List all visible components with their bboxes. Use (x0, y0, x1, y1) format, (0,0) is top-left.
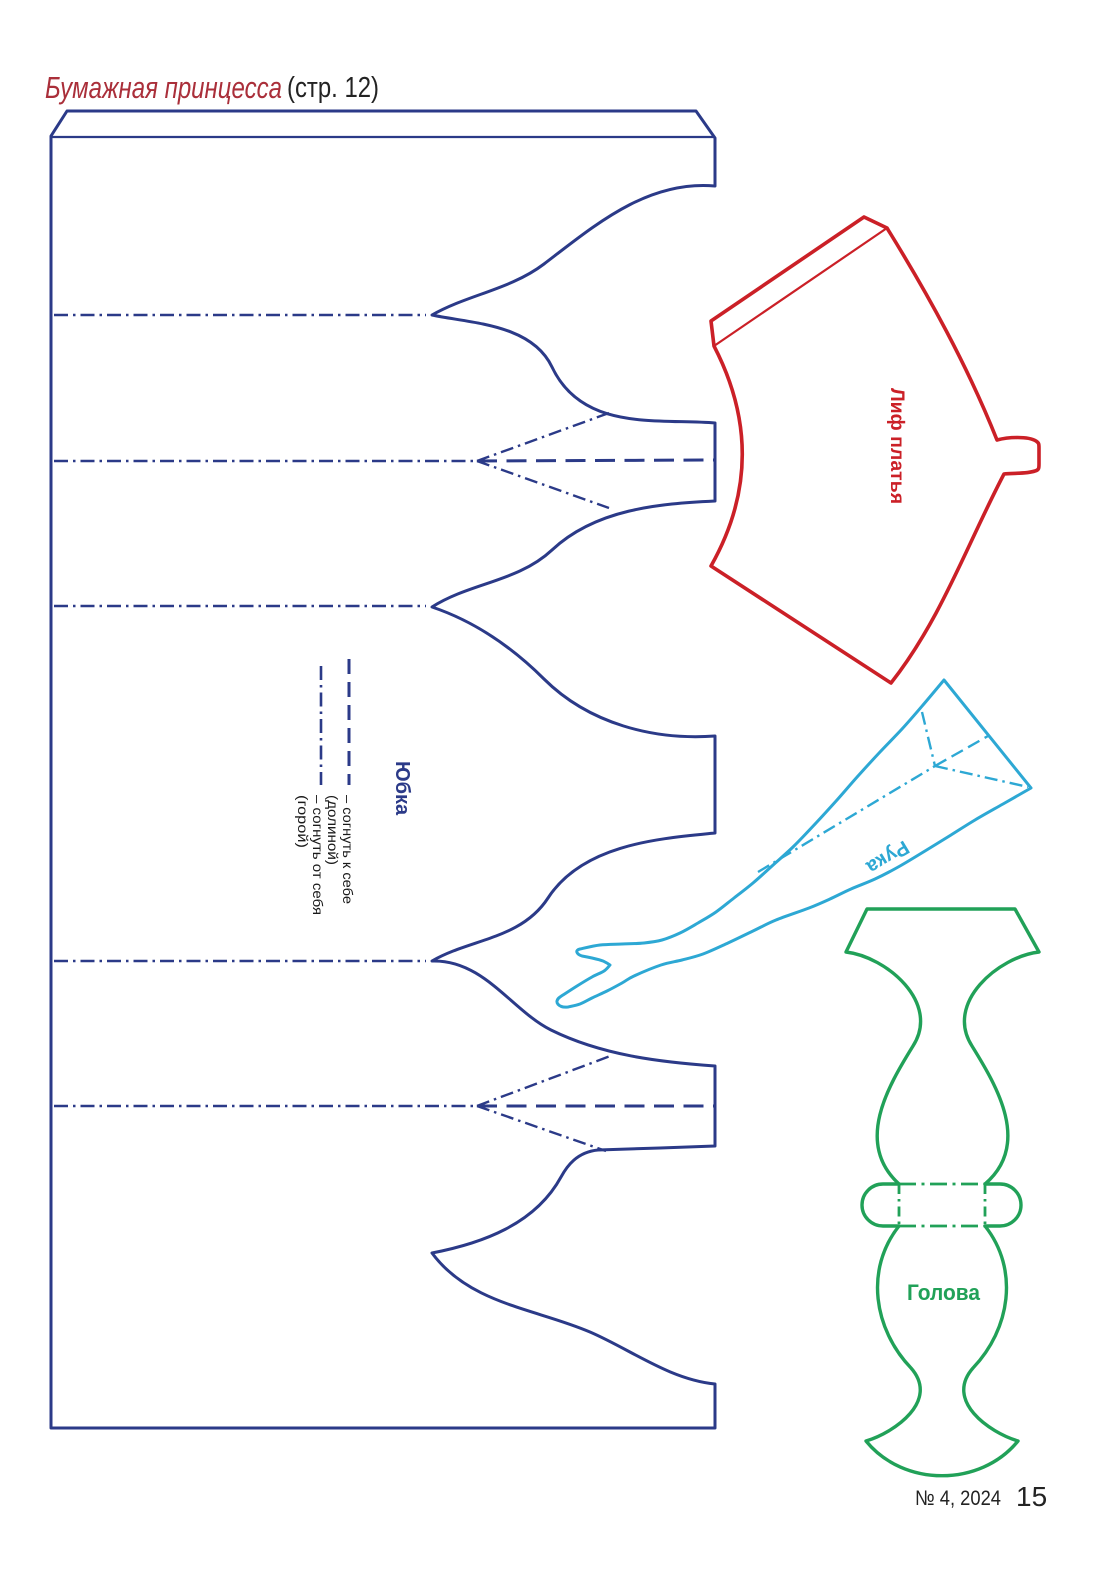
svg-text:– согнуть к себе: – согнуть к себе (340, 795, 355, 904)
svg-text:Голова: Голова (907, 1280, 981, 1305)
svg-text:(горой): (горой) (295, 795, 310, 848)
svg-text:Юбка: Юбка (391, 761, 413, 816)
svg-text:Лиф платья: Лиф платья (886, 388, 908, 504)
svg-text:(долиной): (долиной) (325, 795, 340, 865)
svg-text:Бумажная принцесса: Бумажная принцесса (45, 70, 282, 105)
svg-text:15: 15 (1016, 1481, 1047, 1512)
svg-text:(стр. 12): (стр. 12) (287, 72, 379, 104)
svg-text:– согнуть от себя: – согнуть от себя (310, 795, 325, 915)
svg-text:№ 4, 2024: № 4, 2024 (915, 1487, 1001, 1510)
